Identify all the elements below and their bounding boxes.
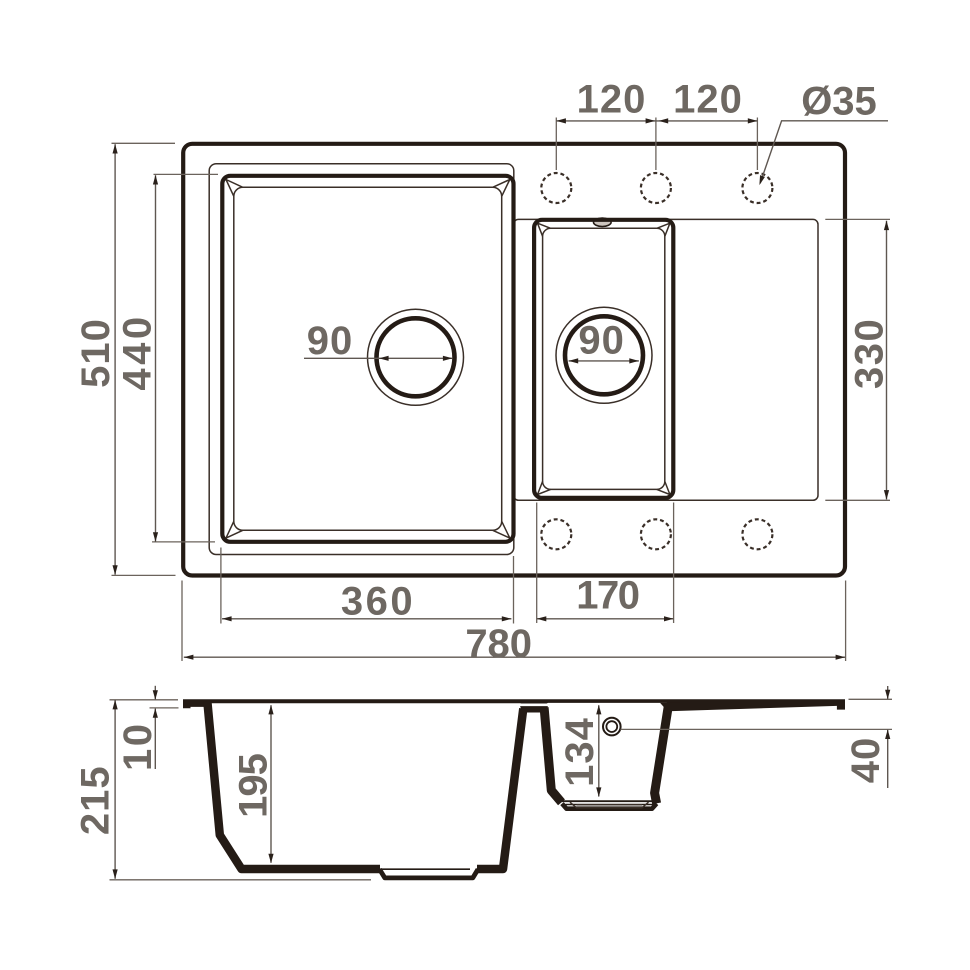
svg-text:440: 440 <box>116 313 160 390</box>
svg-text:40: 40 <box>844 737 888 784</box>
svg-text:195: 195 <box>232 753 276 817</box>
svg-text:510: 510 <box>74 318 118 388</box>
svg-text:10: 10 <box>116 722 160 772</box>
svg-text:215: 215 <box>74 765 118 835</box>
svg-text:Ø35: Ø35 <box>801 80 877 124</box>
svg-text:90: 90 <box>578 319 625 363</box>
svg-text:134: 134 <box>558 717 602 787</box>
svg-text:90: 90 <box>307 319 354 363</box>
svg-text:330: 330 <box>848 318 892 389</box>
svg-text:360: 360 <box>341 580 415 624</box>
svg-text:170: 170 <box>576 574 638 618</box>
svg-text:120: 120 <box>673 78 743 122</box>
svg-text:780: 780 <box>465 622 532 666</box>
svg-text:120: 120 <box>577 78 647 122</box>
